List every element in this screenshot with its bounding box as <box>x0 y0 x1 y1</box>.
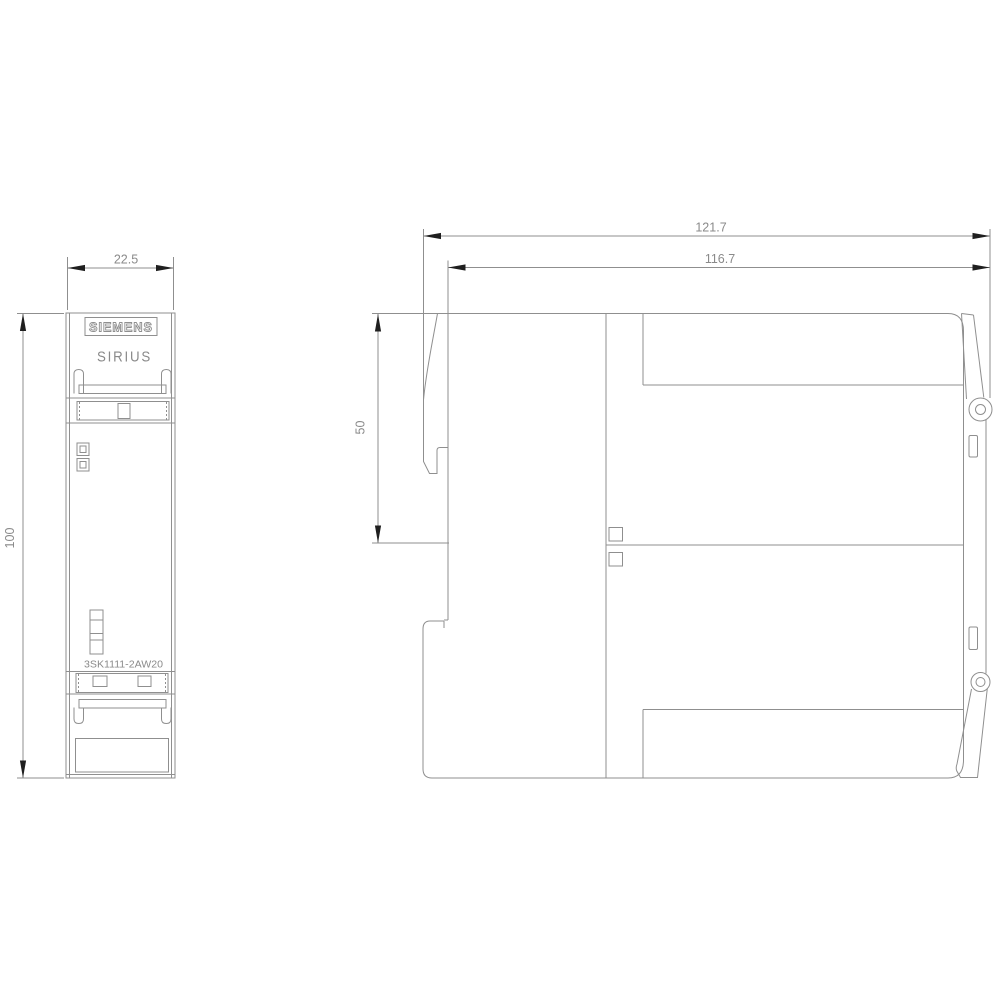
front-view: SIEMENS SIRIUS 3SK1111-2AW20 <box>66 313 175 778</box>
lower-terminal-slot-1 <box>93 676 107 687</box>
lower-terminal-cover <box>76 674 168 693</box>
din-upper-claw <box>424 314 449 474</box>
side-view <box>372 261 992 779</box>
latch-top-cap <box>962 314 974 316</box>
arrowhead-right <box>156 265 174 271</box>
latch-top-pivot-hole <box>976 405 986 415</box>
dimensional-drawing: SIEMENS SIRIUS 3SK1111-2AW20 <box>0 0 1000 1000</box>
latch-top-pivot <box>969 398 992 421</box>
arrowhead-left <box>68 265 86 271</box>
arrowhead-left <box>448 264 466 270</box>
upper-terminal-cover <box>77 402 169 421</box>
led-window-1-inner <box>80 446 86 453</box>
front-height-value: 100 <box>3 528 17 549</box>
led-window-2-inner <box>80 462 86 469</box>
led-window-2 <box>77 459 89 472</box>
dimension-side-body-width: 116.7 <box>448 252 990 271</box>
dimension-front-height: 100 <box>3 314 64 779</box>
brand-logo-text: SIEMENS <box>89 321 153 335</box>
dimension-side-upper-height: 50 <box>354 314 450 543</box>
side-window-lower <box>609 553 623 567</box>
upper-terminal-slot <box>118 404 130 419</box>
technical-drawing-page: SIEMENS SIRIUS 3SK1111-2AW20 <box>0 0 1000 1000</box>
arrowhead-top <box>375 314 381 332</box>
lower-terminal-slot-2 <box>138 676 151 687</box>
part-number-label: 3SK1111-2AW20 <box>84 659 163 671</box>
din-lower-claw <box>423 621 444 778</box>
lower-clip-post-right <box>162 708 172 724</box>
label-field <box>76 739 169 773</box>
latch-bottom-lever <box>956 689 987 778</box>
arrowhead-top <box>20 314 26 332</box>
arrowhead-right <box>973 264 991 270</box>
arrowhead-right <box>973 233 991 239</box>
lower-clip-bar <box>79 700 166 709</box>
side-total-width-value: 121.7 <box>695 221 726 235</box>
marking-stack <box>90 610 103 654</box>
arrowhead-left <box>424 233 442 239</box>
front-width-value: 22.5 <box>114 253 138 267</box>
side-bottom-right-corner <box>948 760 964 778</box>
series-label: SIRIUS <box>97 349 152 366</box>
side-window-upper <box>609 528 623 542</box>
latch-slot-lower <box>969 627 978 650</box>
dimension-side-total-width: 121.7 <box>424 221 991 401</box>
arrowhead-bottom <box>20 761 26 779</box>
latch-bottom-pivot-hole <box>976 678 985 687</box>
led-window-1 <box>77 443 89 456</box>
side-upper-height-value: 50 <box>354 421 368 435</box>
side-body-width-value: 116.7 <box>705 252 735 266</box>
latch-slot-upper <box>969 436 978 458</box>
upper-clip-bar <box>79 385 166 394</box>
dimension-front-width: 22.5 <box>68 253 174 311</box>
latch-top-lever-outer <box>974 315 984 398</box>
lower-clip-post-left <box>74 708 84 724</box>
arrowhead-bottom <box>375 526 381 544</box>
